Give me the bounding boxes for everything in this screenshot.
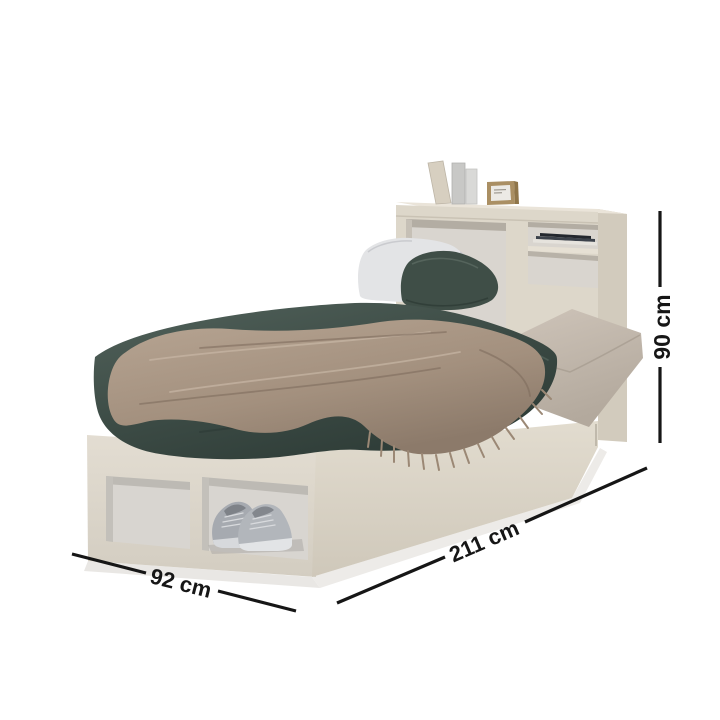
product-dimension-diagram: 90 cm 211 cm 92 cm: [0, 0, 720, 720]
height-dimension-label: 90 cm: [649, 294, 675, 359]
decor-book-upright-2: [466, 169, 477, 204]
cubby-left-side-shadow: [106, 476, 113, 542]
decor-book-upright-1: [452, 163, 465, 204]
decor-book-leaning: [428, 161, 451, 204]
storage-cubby-left: [106, 476, 190, 549]
width-dimension-line-right: [218, 591, 296, 611]
height-dimension: 90 cm: [649, 211, 675, 443]
picture-frame: [487, 181, 519, 205]
headboard-upper-shelf: [528, 222, 598, 254]
headboard-top-decor: [428, 161, 519, 205]
storage-cubby-right: [202, 477, 308, 560]
bed-dimension-illustration: 90 cm 211 cm 92 cm: [0, 0, 720, 720]
cubby-right-side-shadow: [202, 477, 209, 551]
headboard-lower-shelf: [528, 251, 598, 288]
